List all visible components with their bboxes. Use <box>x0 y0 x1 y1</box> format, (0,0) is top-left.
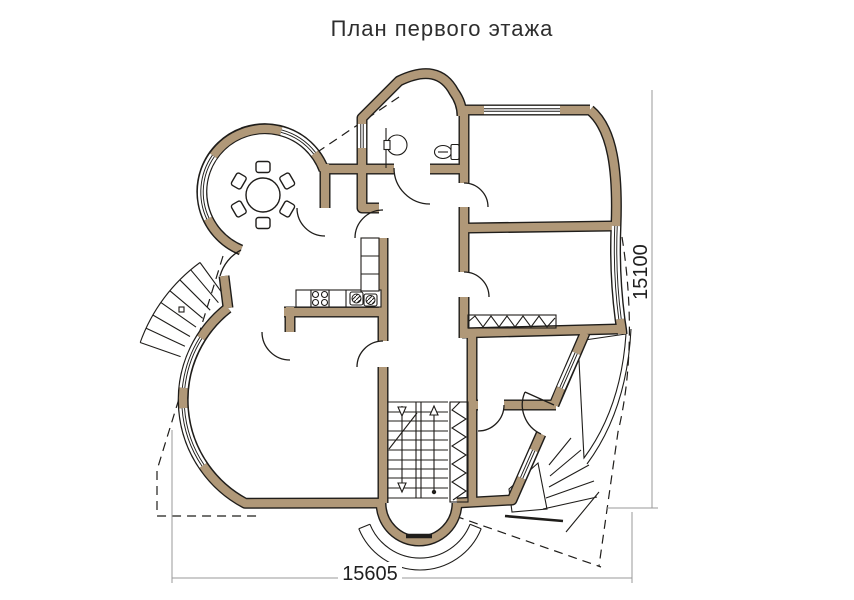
wardrobe-hatch-stair <box>450 402 468 502</box>
living-window-upper <box>184 338 201 388</box>
living-window-lower <box>183 408 203 465</box>
right-room-window <box>616 226 620 319</box>
dim-width-label: 15605 <box>342 563 398 585</box>
dining-set <box>231 162 296 229</box>
floor-plan-page: План первого этажа <box>0 0 854 600</box>
stove-icon <box>311 290 329 307</box>
bay-window-right <box>281 131 314 153</box>
kitchen-units <box>296 238 381 307</box>
double-sink-icon <box>350 292 377 306</box>
round-table-icon <box>246 178 280 212</box>
bathroom-fixtures <box>384 135 459 160</box>
toilet-icon <box>435 145 460 160</box>
floor-plan-drawing: 15100 15605 <box>0 0 854 600</box>
bay-window-left <box>202 156 213 219</box>
terrace-wall-window-lower <box>522 450 534 478</box>
internal-staircase <box>388 402 450 502</box>
external-curved-stairs <box>140 263 225 357</box>
dim-height-label: 15100 <box>630 244 652 300</box>
washbasin-icon <box>384 135 407 155</box>
